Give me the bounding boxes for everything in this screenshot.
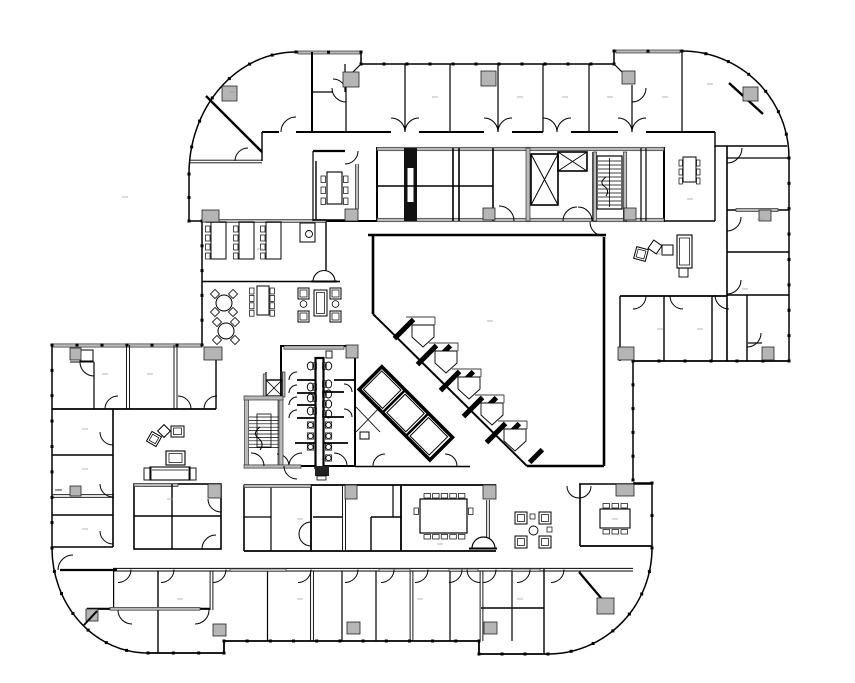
svg-text:xxx: xxx	[437, 541, 443, 546]
svg-text:xxx: xxx	[229, 89, 235, 94]
svg-text:xxx: xxx	[517, 596, 523, 601]
svg-text:xxx: xxx	[687, 196, 693, 201]
svg-text:xxx: xxx	[517, 94, 523, 99]
svg-text:xxx: xxx	[122, 194, 128, 199]
svg-text:xxx: xxx	[82, 526, 88, 531]
svg-text:xxx: xxx	[607, 94, 613, 99]
svg-text:xxx: xxx	[612, 516, 618, 521]
svg-text:xxx: xxx	[742, 286, 748, 291]
svg-text:xxx: xxx	[147, 371, 153, 376]
svg-text:xxx: xxx	[432, 94, 438, 99]
svg-text:xxx: xxx	[102, 371, 108, 376]
svg-text:xxx: xxx	[177, 596, 183, 601]
svg-text:xxx: xxx	[297, 516, 303, 521]
svg-text:xxx: xxx	[487, 318, 493, 323]
svg-text:xxx: xxx	[297, 596, 303, 601]
svg-text:xxx: xxx	[657, 251, 663, 256]
svg-text:xxx: xxx	[562, 94, 568, 99]
svg-text:xxx: xxx	[167, 496, 173, 501]
svg-text:xxx: xxx	[662, 94, 668, 99]
svg-text:xxx: xxx	[697, 326, 703, 331]
svg-text:xxx: xxx	[707, 81, 713, 86]
svg-text:xxx: xxx	[82, 466, 88, 471]
svg-text:xxx: xxx	[257, 246, 263, 251]
svg-text:xxx: xxx	[657, 326, 663, 331]
svg-text:xxx: xxx	[82, 426, 88, 431]
svg-text:xxx: xxx	[757, 216, 763, 221]
svg-text:xxx: xxx	[417, 596, 423, 601]
